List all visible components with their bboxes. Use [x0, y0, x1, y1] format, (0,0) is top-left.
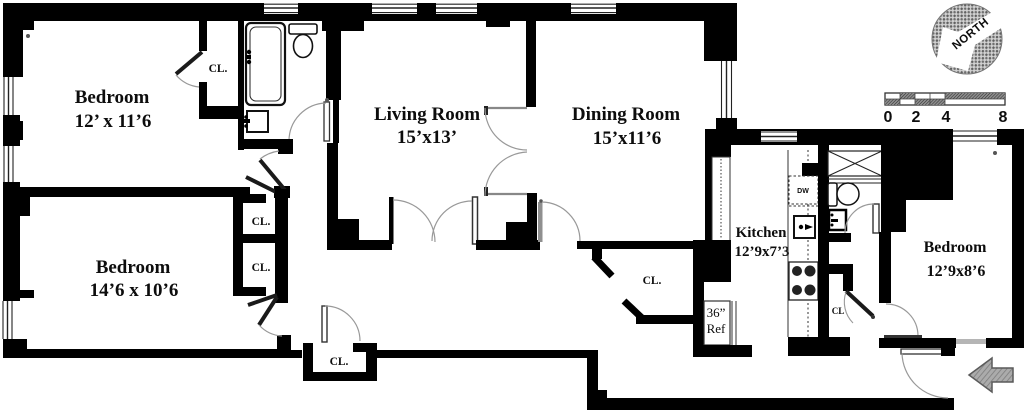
svg-text:DW: DW: [797, 188, 809, 195]
svg-text:4: 4: [942, 109, 951, 126]
svg-text:CL.: CL.: [643, 275, 662, 287]
svg-text:CL: CL: [832, 306, 845, 316]
svg-text:8: 8: [999, 109, 1008, 126]
svg-text:CL.: CL.: [252, 216, 271, 228]
svg-text:Kitchen: Kitchen: [736, 225, 787, 241]
svg-text:Ref: Ref: [707, 321, 726, 336]
svg-text:0: 0: [884, 109, 893, 126]
svg-text:14’6 x 10’6: 14’6 x 10’6: [90, 280, 179, 301]
svg-text:36”: 36”: [707, 305, 726, 320]
svg-text:CL.: CL.: [252, 262, 271, 274]
svg-text:12’ x 11’6: 12’ x 11’6: [75, 111, 152, 132]
svg-text:CL.: CL.: [330, 356, 349, 368]
svg-text:15’x13’: 15’x13’: [397, 127, 457, 148]
svg-text:Bedroom: Bedroom: [75, 87, 150, 108]
svg-text:Bedroom: Bedroom: [924, 239, 987, 256]
svg-text:Dining Room: Dining Room: [572, 104, 680, 125]
svg-text:Living Room: Living Room: [374, 104, 480, 125]
svg-text:2: 2: [912, 109, 921, 126]
svg-text:12’9x8’6: 12’9x8’6: [927, 263, 986, 280]
svg-text:12’9x7’3: 12’9x7’3: [735, 244, 790, 260]
svg-text:CL.: CL.: [209, 63, 228, 75]
svg-text:15’x11’6: 15’x11’6: [593, 128, 662, 149]
svg-text:Bedroom: Bedroom: [96, 257, 171, 278]
